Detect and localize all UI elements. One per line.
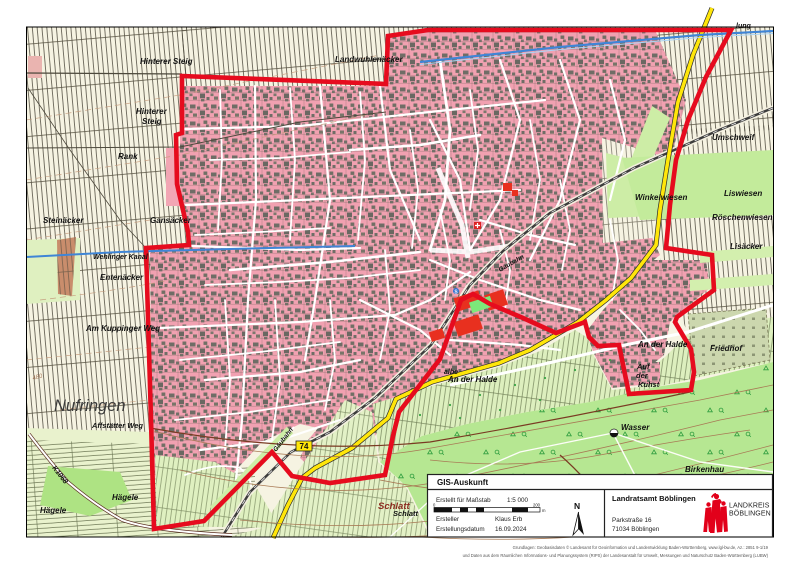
- svg-text:GIS-Auskunft: GIS-Auskunft: [437, 478, 488, 487]
- svg-text:der: der: [636, 371, 649, 380]
- svg-text:71034 Böblingen: 71034 Böblingen: [612, 526, 660, 533]
- svg-text:Grundlagen: Geobasisdaten © La: Grundlagen: Geobasisdaten © Landesamt fü…: [513, 545, 769, 550]
- svg-text:1:5 000: 1:5 000: [507, 497, 529, 504]
- svg-text:Entenäcker: Entenäcker: [100, 273, 144, 282]
- svg-text:Birkenhau: Birkenhau: [685, 465, 724, 474]
- svg-text:Erstellungsdatum: Erstellungsdatum: [436, 526, 485, 533]
- svg-text:Winkelwiesen: Winkelwiesen: [635, 193, 688, 202]
- svg-text:Wasser: Wasser: [621, 423, 650, 432]
- svg-text:200: 200: [533, 503, 541, 508]
- svg-text:Nufringen: Nufringen: [54, 397, 126, 415]
- svg-text:LANDKREIS: LANDKREIS: [729, 503, 770, 510]
- svg-text:Hinterer Steig: Hinterer Steig: [140, 57, 193, 66]
- svg-text:Wehlinger Kanal: Wehlinger Kanal: [93, 254, 149, 261]
- svg-text:Hägele: Hägele: [112, 493, 139, 502]
- svg-text:N: N: [574, 501, 580, 511]
- svg-text:Erstellt für Maßstab: Erstellt für Maßstab: [436, 497, 491, 504]
- svg-text:albe: albe: [444, 369, 458, 376]
- svg-text:Umschweif: Umschweif: [712, 133, 756, 142]
- svg-text:Röschenwiesen: Röschenwiesen: [712, 213, 773, 222]
- svg-text:Landwuhlenäcker: Landwuhlenäcker: [335, 55, 403, 64]
- svg-text:Hinterer: Hinterer: [136, 107, 168, 116]
- svg-text:Liswiesen: Liswiesen: [724, 189, 762, 198]
- svg-text:m: m: [542, 508, 546, 513]
- svg-text:Kuhst: Kuhst: [638, 380, 660, 389]
- svg-text:16.09.2024: 16.09.2024: [495, 526, 527, 533]
- svg-text:Affstätter Weg: Affstätter Weg: [91, 421, 143, 430]
- svg-text:BÖBLINGEN: BÖBLINGEN: [729, 510, 771, 518]
- svg-text:Lisäcker: Lisäcker: [730, 242, 763, 251]
- svg-text:Hägele: Hägele: [40, 506, 67, 515]
- svg-text:An der Halde: An der Halde: [447, 375, 498, 384]
- svg-text:74: 74: [300, 442, 309, 451]
- svg-text:Schlatt: Schlatt: [393, 509, 419, 518]
- svg-text:Am Kuppinger Weg: Am Kuppinger Weg: [85, 324, 160, 333]
- svg-text:Landratsamt Böblingen: Landratsamt Böblingen: [612, 494, 696, 503]
- svg-text:Auf: Auf: [636, 362, 651, 371]
- svg-text:Steig: Steig: [142, 117, 162, 126]
- svg-text:Ersteller: Ersteller: [436, 516, 459, 523]
- svg-text:Friedhof: Friedhof: [710, 344, 743, 353]
- svg-text:und Daten aus dem Räumlichen I: und Daten aus dem Räumlichen Information…: [463, 553, 769, 558]
- svg-text:Rank: Rank: [118, 152, 138, 161]
- svg-text:Parkstraße 16: Parkstraße 16: [612, 517, 652, 524]
- svg-text:Gansäcker: Gansäcker: [150, 216, 192, 225]
- svg-text:Steinäcker: Steinäcker: [43, 216, 84, 225]
- svg-text:An der Halde: An der Halde: [637, 340, 688, 349]
- svg-text:Klaus Erb: Klaus Erb: [495, 516, 523, 523]
